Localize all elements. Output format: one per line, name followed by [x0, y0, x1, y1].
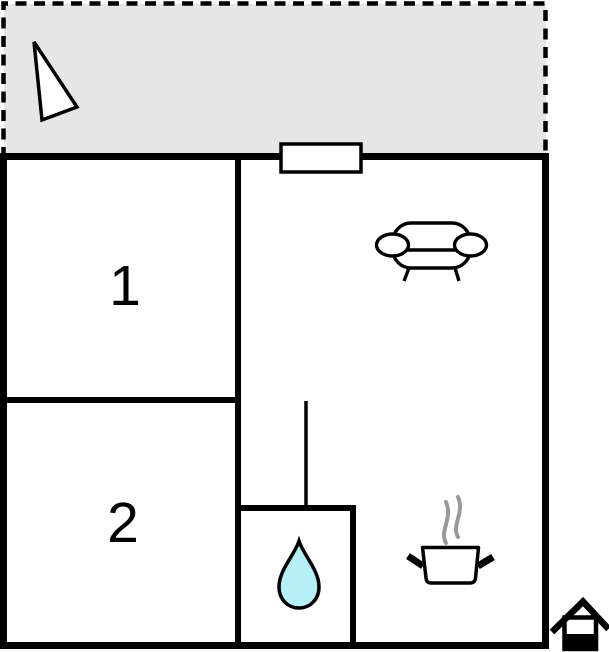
terrace-area	[4, 4, 546, 158]
sofa-armrest-left	[377, 234, 409, 256]
window-marker	[281, 144, 361, 172]
floorplan-drawing: 1 2	[0, 0, 609, 652]
sofa-armrest-right	[455, 234, 487, 256]
pot-body	[423, 548, 479, 584]
room-1-label: 1	[109, 254, 141, 318]
terrace	[4, 4, 547, 159]
floorplan: 1 2	[0, 0, 609, 652]
room-2-label: 2	[107, 491, 139, 555]
house-logo-icon	[552, 602, 609, 650]
house-logo-band	[567, 634, 595, 647]
